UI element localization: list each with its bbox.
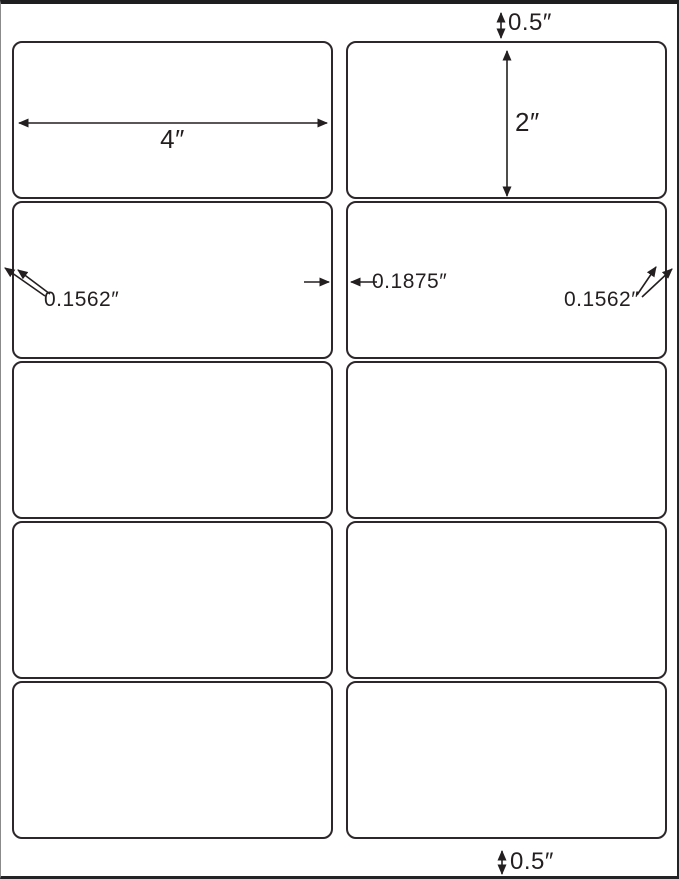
label-cell <box>12 201 333 359</box>
label-cell <box>346 521 667 679</box>
label-cell <box>12 361 333 519</box>
top-margin-dimension: 0.5″ <box>508 11 552 35</box>
label-cell <box>346 681 667 839</box>
column-gap-dimension: 0.1875″ <box>372 271 447 292</box>
label-cell <box>12 41 333 199</box>
bottom-margin-dimension: 0.5″ <box>510 850 554 874</box>
label-width-dimension: 4″ <box>12 126 333 152</box>
label-cell <box>346 361 667 519</box>
left-margin-dimension: 0.1562″ <box>44 289 119 310</box>
right-margin-dimension: 0.1562″ <box>564 289 639 310</box>
label-cell <box>12 681 333 839</box>
label-cell <box>12 521 333 679</box>
label-sheet-page: 0.5″ 4″ 2″ 0.1562″ 0.1875″ 0.1562″ 0.5″ <box>0 0 679 879</box>
label-cell <box>346 41 667 199</box>
label-height-dimension: 2″ <box>515 109 540 135</box>
